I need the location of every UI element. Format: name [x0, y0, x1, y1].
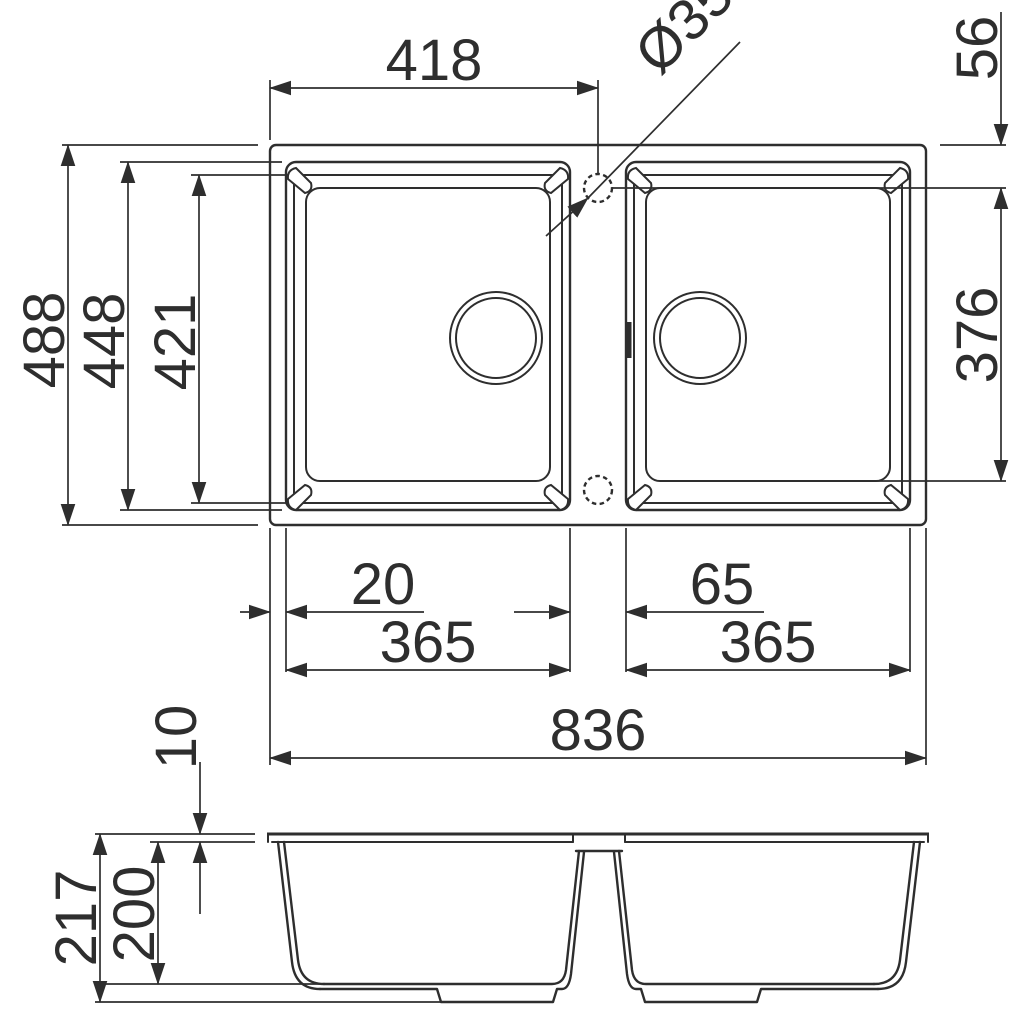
- bowl-corner-facet: [545, 485, 569, 510]
- label-20: 20: [351, 552, 416, 617]
- left-bowl: [286, 162, 570, 510]
- left-drain-inner: [456, 298, 536, 378]
- label-488: 488: [12, 292, 77, 389]
- dimension-lines: [68, 12, 1001, 1002]
- left-bowl-rim-outer: [286, 162, 570, 510]
- bowl-corner-facet: [288, 168, 312, 193]
- label-376: 376: [945, 287, 1010, 384]
- bowl-corner-facet: [628, 168, 652, 193]
- label-365-left: 365: [380, 610, 477, 675]
- side-view: [267, 834, 929, 1002]
- right-bowl-rim-mid: [634, 175, 902, 503]
- label-10: 10: [144, 705, 209, 770]
- label-418: 418: [386, 28, 483, 93]
- right-bowl: [626, 162, 910, 510]
- left-bowl-bottom-inner: [324, 851, 579, 984]
- label-421: 421: [143, 294, 208, 391]
- label-217: 217: [44, 870, 109, 967]
- right-bowl-bottom-inner: [619, 851, 874, 984]
- right-drain-inner: [660, 298, 740, 378]
- right-bowl-bottom-outer: [614, 852, 878, 1002]
- right-bowl-rim-outer: [626, 162, 910, 510]
- left-bowl-rim-mid: [294, 175, 562, 503]
- label-448: 448: [72, 293, 137, 390]
- leader-hole-arrow: [546, 198, 588, 236]
- bowl-corner-facet: [885, 485, 909, 510]
- right-bowl-rim-inner: [646, 188, 890, 481]
- extension-lines: [62, 80, 1006, 1002]
- right-wall-inner: [874, 842, 914, 984]
- sink-technical-drawing: 418 Ø35 56 488 448 421 376 20 65 365 365…: [0, 0, 1024, 1024]
- bowl-corner-facet: [628, 485, 652, 510]
- bowl-corner-facet: [545, 168, 569, 193]
- label-56: 56: [945, 16, 1010, 81]
- sink-outline: [270, 145, 926, 525]
- faucet-hole-bottom: [584, 476, 612, 504]
- bowl-corner-facet: [885, 168, 909, 193]
- label-200: 200: [102, 866, 167, 963]
- label-836: 836: [550, 698, 647, 763]
- label-hole-diameter: Ø35: [622, 0, 745, 86]
- label-365-right: 365: [720, 610, 817, 675]
- drawing-page: 418 Ø35 56 488 448 421 376 20 65 365 365…: [0, 0, 1024, 1024]
- left-drain-outer: [450, 292, 542, 384]
- bowl-corner-facets: [288, 168, 908, 510]
- left-bowl-rim-inner: [306, 188, 550, 481]
- left-wall-inner: [284, 842, 324, 984]
- left-bowl-bottom-outer: [320, 852, 584, 1002]
- label-65: 65: [690, 552, 755, 617]
- right-drain-outer: [654, 292, 746, 384]
- bowl-corner-facet: [288, 485, 312, 510]
- top-view: [270, 145, 926, 525]
